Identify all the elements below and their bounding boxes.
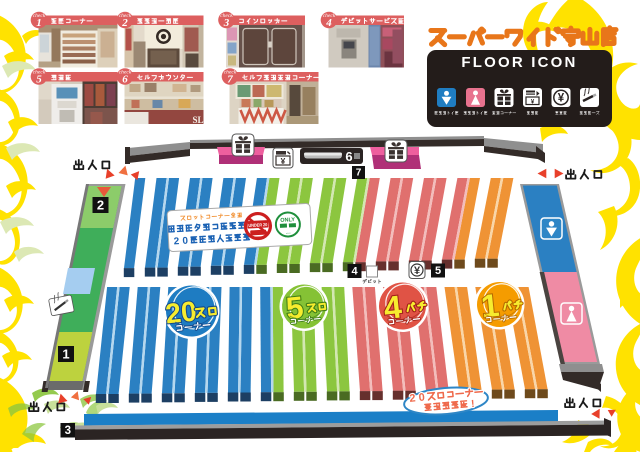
svg-text:5: 5: [435, 265, 441, 277]
svg-text:FLOOR ICON: FLOOR ICON: [461, 54, 577, 71]
svg-text:6: 6: [345, 149, 352, 164]
svg-text:7: 7: [356, 168, 362, 179]
svg-text:¥: ¥: [281, 156, 286, 166]
svg-text:2: 2: [97, 198, 104, 213]
svg-text:....: ....: [286, 229, 291, 234]
svg-text:0: 0: [418, 392, 425, 404]
svg-text:3: 3: [65, 425, 71, 437]
svg-text:4: 4: [351, 266, 358, 278]
svg-text:2: 2: [173, 236, 180, 247]
svg-text:4: 4: [325, 17, 332, 29]
svg-text:6: 6: [122, 74, 128, 86]
svg-text:UNDER 20: UNDER 20: [248, 222, 268, 228]
svg-text:1: 1: [62, 347, 69, 362]
svg-text:ONLY: ONLY: [280, 217, 295, 224]
svg-text:¥: ¥: [414, 265, 421, 277]
svg-text:2: 2: [121, 17, 128, 29]
svg-text:5: 5: [36, 74, 42, 86]
svg-text:¥: ¥: [558, 93, 565, 105]
svg-text:2: 2: [409, 392, 416, 404]
svg-text:1: 1: [36, 17, 42, 29]
svg-text:3: 3: [223, 17, 230, 29]
svg-text:SL: SL: [193, 115, 204, 125]
svg-text:7: 7: [227, 74, 233, 86]
svg-text:0: 0: [182, 236, 189, 247]
